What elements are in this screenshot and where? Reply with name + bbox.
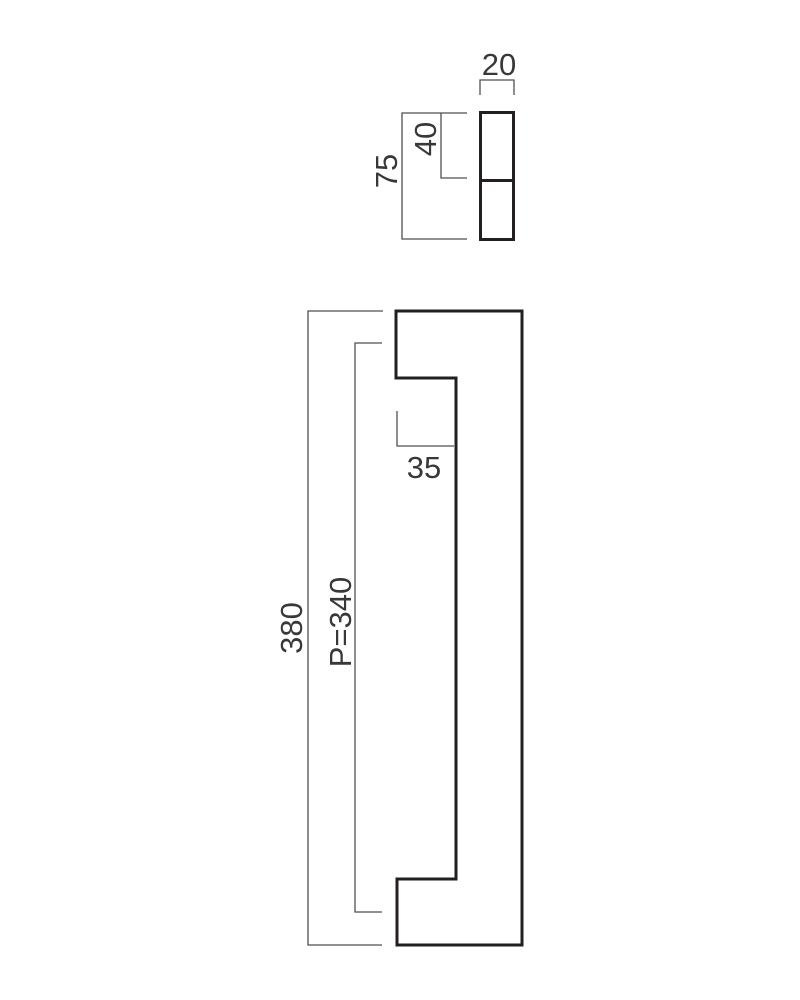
dim-20-bracket — [480, 80, 514, 95]
dim-20-label: 20 — [482, 47, 516, 82]
handle-front-outline — [396, 311, 522, 945]
dim-35-bracket — [397, 411, 454, 446]
section-profile-outline — [481, 113, 514, 240]
dim-40-bracket — [441, 113, 467, 178]
dim-380-label: 380 — [274, 602, 309, 654]
dim-40-label: 40 — [408, 122, 443, 156]
dim-35-label: 35 — [407, 450, 441, 485]
technical-drawing-canvas: 20 75 40 380 P=340 35 — [0, 0, 800, 1000]
dim-75-label: 75 — [369, 154, 404, 188]
front-view: 380 P=340 35 — [274, 311, 522, 945]
dim-p340-bracket — [355, 343, 382, 912]
dim-p340-label: P=340 — [323, 577, 358, 668]
drawing-svg: 20 75 40 380 P=340 35 — [0, 0, 800, 1000]
section-view: 20 75 40 — [369, 47, 516, 240]
